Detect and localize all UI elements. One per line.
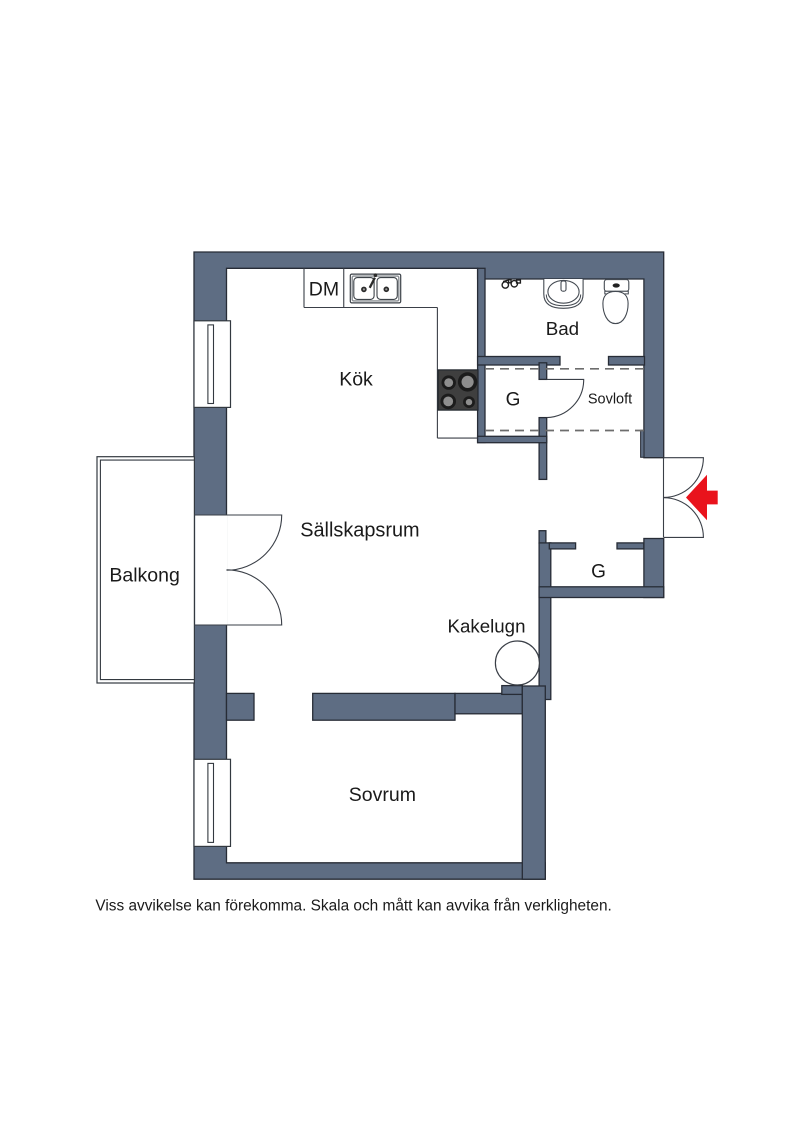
svg-text:G: G [591,562,606,583]
svg-text:Sällskapsrum: Sällskapsrum [300,520,419,542]
svg-text:Kakelugn: Kakelugn [448,616,526,637]
svg-text:Viss avvikelse kan förekomma.: Viss avvikelse kan förekomma. Skala och … [95,898,611,915]
svg-text:G: G [506,389,521,410]
svg-text:Sovrum: Sovrum [349,784,416,806]
svg-text:Sovloft: Sovloft [588,392,632,408]
svg-text:Balkong: Balkong [109,565,179,587]
svg-text:Bad: Bad [546,318,579,339]
svg-text:DM: DM [309,279,339,301]
svg-text:Kök: Kök [339,369,373,391]
